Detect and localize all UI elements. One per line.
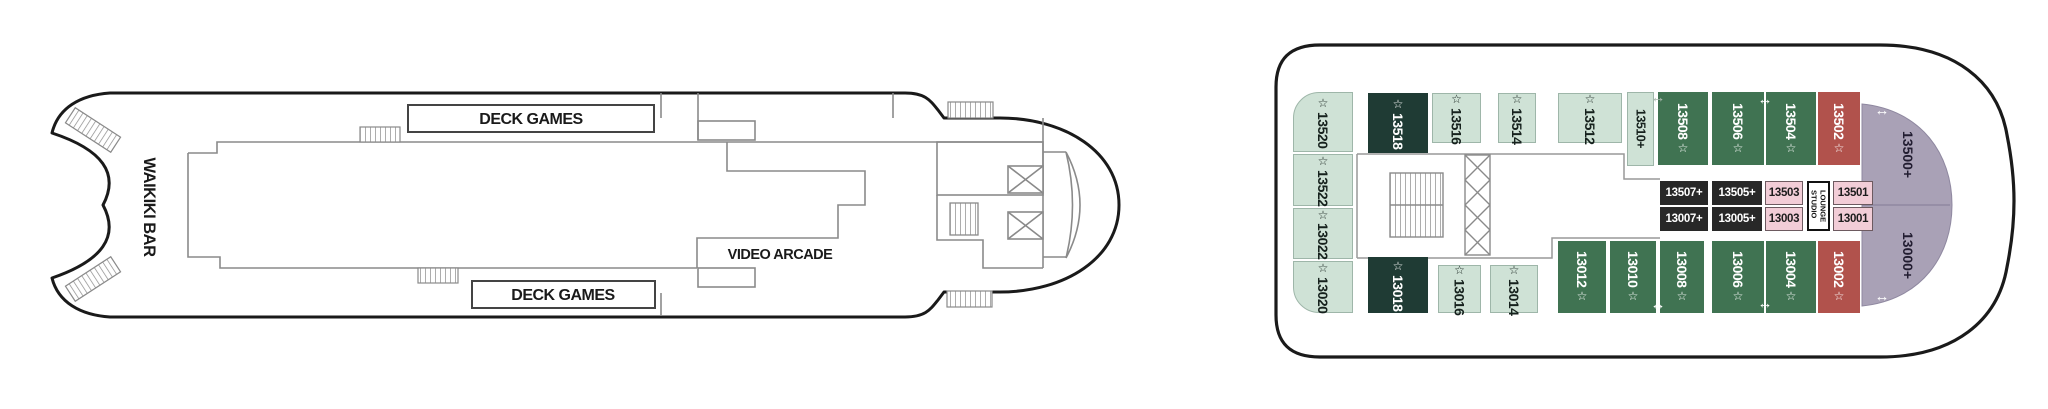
cabin-13522[interactable]: ☆13522 (1293, 154, 1353, 206)
cabin-13014[interactable]: ☆13014 (1490, 265, 1538, 313)
cabin-13001[interactable]: 13001 (1833, 207, 1873, 231)
cabin-13503[interactable]: 13503 (1765, 181, 1803, 205)
cabin-13002[interactable]: 13002☆ (1818, 241, 1860, 313)
cabin-13516[interactable]: ☆13516 (1432, 93, 1481, 143)
cabin-13520[interactable]: ☆13520 (1293, 92, 1353, 152)
cabin-number: 13016 (1452, 279, 1468, 315)
cabin-13518[interactable]: ☆13518 (1368, 93, 1428, 153)
cabin-number: 13522 (1315, 170, 1331, 206)
cabin-number: 13505+ (1719, 187, 1756, 199)
star-icon: ☆ (1731, 289, 1745, 303)
right-deck-elevator (1465, 155, 1490, 255)
star-icon: ☆ (1626, 289, 1640, 303)
cabin-13007[interactable]: 13007+ (1660, 207, 1708, 231)
deck-plan-canvas: DECK GAMES DECK GAMES VIDEO ARCADE WAIKI… (0, 0, 2048, 409)
cabin-13018[interactable]: ☆13018 (1368, 257, 1428, 313)
cabin-number: 13006 (1730, 251, 1746, 287)
cabin-number: 13020 (1315, 277, 1331, 313)
cabin-number: 13000+ (1900, 232, 1916, 279)
star-icon: ☆ (1453, 263, 1467, 277)
cabin-13022[interactable]: ☆13022 (1293, 208, 1353, 259)
cabin-number: 13504 (1783, 103, 1799, 139)
cabin-number: 13514 (1509, 108, 1525, 144)
connecting-arrow-icon: ↔ (1755, 296, 1775, 311)
connecting-arrow-icon: ↔ (1648, 90, 1668, 105)
cabin-number: 13012 (1574, 251, 1590, 287)
cabin-number: 13518 (1390, 113, 1406, 149)
cabin-number: 13512 (1582, 108, 1598, 144)
star-icon: ☆ (1784, 141, 1798, 155)
cabin-number: 13508 (1675, 103, 1691, 139)
cabin-13507[interactable]: 13507+ (1660, 181, 1708, 205)
cabin-13020[interactable]: ☆13020 (1293, 261, 1353, 313)
cabin-number: 13005+ (1719, 213, 1756, 225)
star-icon: ☆ (1575, 289, 1589, 303)
star-icon: ☆ (1784, 289, 1798, 303)
cabin-13505[interactable]: 13505+ (1712, 181, 1762, 205)
studio-lounge: STUDIO LOUNGE (1807, 181, 1830, 231)
cabin-13005[interactable]: 13005+ (1712, 207, 1762, 231)
cabin-number: 13500+ (1900, 131, 1916, 178)
cabin-number: 13008 (1674, 251, 1690, 287)
cabin-13514[interactable]: ☆13514 (1498, 93, 1536, 143)
star-icon: ☆ (1832, 141, 1846, 155)
cabin-13012[interactable]: 13012☆ (1558, 241, 1606, 313)
star-icon: ☆ (1583, 92, 1597, 106)
cabin-13502[interactable]: 13502☆ (1818, 92, 1860, 165)
cabin-number: 13510+ (1634, 109, 1648, 148)
cabin-number: 13506 (1730, 103, 1746, 139)
cabin-number: 13507+ (1666, 187, 1703, 199)
studio-lounge-label-line2: LOUNGE (1819, 190, 1828, 222)
cabin-number: 13004 (1783, 251, 1799, 287)
cabin-number: 13501 (1838, 187, 1868, 199)
star-icon: ☆ (1676, 141, 1690, 155)
cabin-number: 13003 (1769, 213, 1799, 225)
cabin-number: 13010 (1625, 251, 1641, 287)
cabin-number: 13516 (1449, 108, 1465, 144)
cabin-number: 13018 (1390, 275, 1406, 311)
cabin-number: 13014 (1506, 279, 1522, 315)
star-icon: ☆ (1316, 96, 1330, 110)
cabin-13512[interactable]: ☆13512 (1558, 93, 1622, 143)
right-deck-stairs (1390, 173, 1443, 237)
star-icon: ☆ (1507, 263, 1521, 277)
star-icon: ☆ (1731, 141, 1745, 155)
cabin-number: 13001 (1838, 213, 1868, 225)
cabin-number: 13002 (1831, 251, 1847, 287)
connecting-arrow-icon: ↔ (1872, 289, 1892, 304)
cabin-13016[interactable]: ☆13016 (1438, 265, 1481, 313)
cabin-number: 13520 (1315, 112, 1331, 148)
cabin-number: 13007+ (1666, 213, 1703, 225)
star-icon: ☆ (1316, 154, 1330, 168)
star-icon: ☆ (1450, 92, 1464, 106)
cabin-number: 13502 (1831, 103, 1847, 139)
cabin-number: 13503 (1769, 187, 1799, 199)
studio-lounge-label-line1: STUDIO (1810, 190, 1819, 218)
cabin-number: 13022 (1315, 223, 1331, 259)
connecting-arrow-icon: ↔ (1755, 92, 1775, 107)
star-icon: ☆ (1675, 289, 1689, 303)
star-icon: ☆ (1832, 289, 1846, 303)
star-icon: ☆ (1316, 261, 1330, 275)
connecting-arrow-icon: ↔ (1648, 297, 1668, 312)
cabin-13500[interactable]: 13500+ (1888, 110, 1928, 200)
cabin-13003[interactable]: 13003 (1765, 207, 1803, 231)
cabin-13000[interactable]: 13000+ (1888, 208, 1928, 303)
star-icon: ☆ (1510, 92, 1524, 106)
star-icon: ☆ (1391, 97, 1405, 111)
star-icon: ☆ (1316, 208, 1330, 222)
connecting-arrow-icon: ↔ (1872, 103, 1892, 118)
star-icon: ☆ (1391, 259, 1405, 273)
cabin-13501[interactable]: 13501 (1833, 181, 1873, 205)
